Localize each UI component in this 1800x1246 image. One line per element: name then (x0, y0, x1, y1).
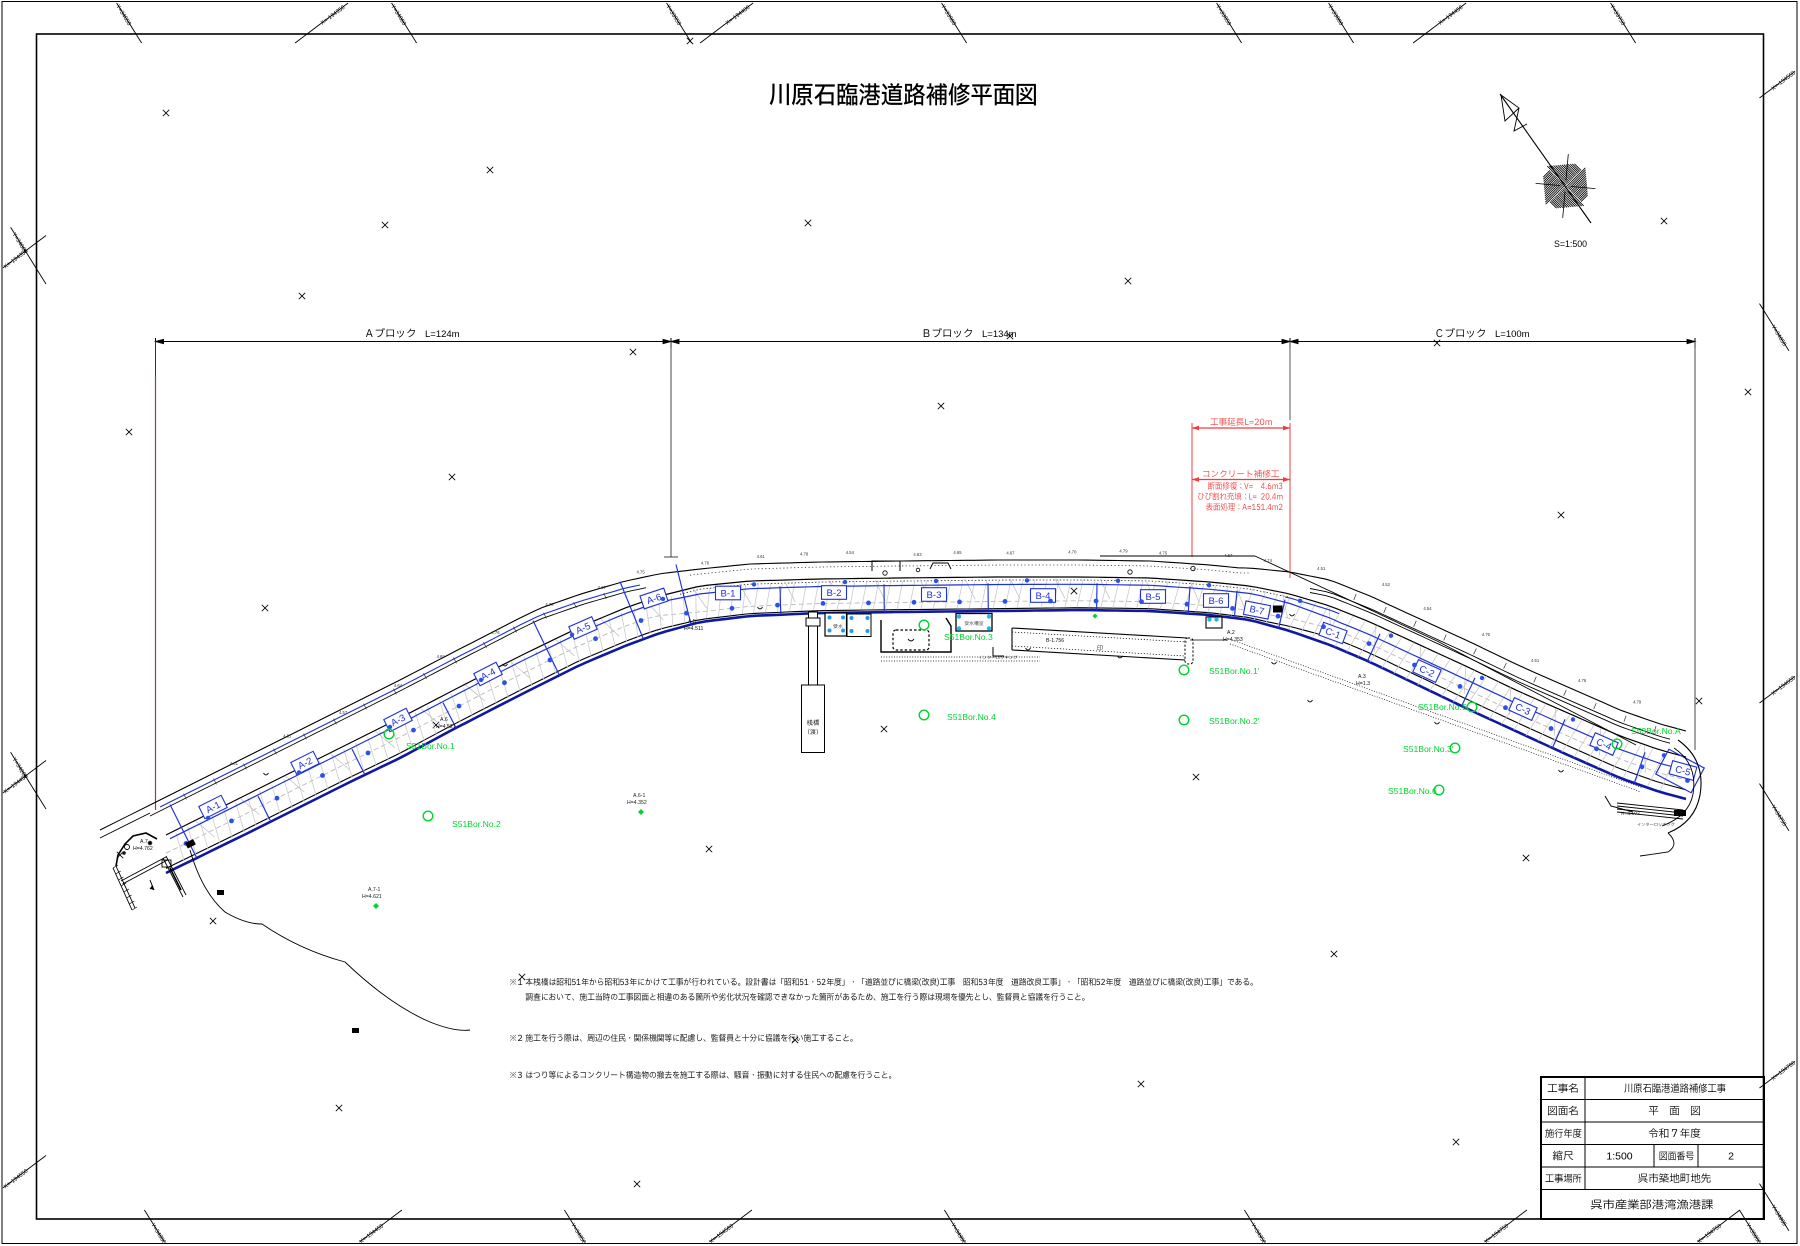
svg-text:B-5: B-5 (1146, 592, 1161, 603)
svg-text:S51Bor.No.2': S51Bor.No.2' (1209, 716, 1260, 726)
svg-text:4.61: 4.61 (230, 761, 239, 766)
svg-text:4.65: 4.65 (953, 550, 962, 555)
svg-text:4.74: 4.74 (1264, 558, 1273, 563)
svg-text:B-6: B-6 (1209, 596, 1224, 607)
svg-text:H=4.762: H=4.762 (133, 846, 153, 852)
svg-text:H=4.353: H=4.353 (1223, 637, 1243, 643)
svg-text:H=4.511: H=4.511 (684, 626, 703, 632)
svg-text:4.61: 4.61 (757, 554, 766, 559)
svg-text:4.75: 4.75 (637, 570, 646, 575)
svg-text:L=124m: L=124m (425, 329, 460, 340)
svg-text:4.78: 4.78 (800, 552, 809, 557)
svg-text:4.67: 4.67 (598, 585, 607, 590)
svg-text:A.5: A.5 (688, 619, 696, 625)
svg-text:4.76: 4.76 (491, 630, 500, 635)
svg-text:S51Bor.No.1': S51Bor.No.1' (1209, 666, 1260, 676)
svg-text:L=134m: L=134m (982, 329, 1017, 340)
svg-text:4.79: 4.79 (1633, 700, 1642, 705)
svg-text:4.52: 4.52 (1382, 582, 1391, 587)
svg-text:4.75: 4.75 (1159, 551, 1168, 556)
svg-text:4.54: 4.54 (846, 550, 855, 555)
svg-text:4.51: 4.51 (1317, 566, 1326, 571)
svg-text:A.3: A.3 (1358, 674, 1366, 680)
svg-text:S51Bor.No.5: S51Bor.No.5 (1418, 702, 1467, 712)
svg-text:4.54: 4.54 (1423, 606, 1432, 611)
svg-text:S53Bor.No.A: S53Bor.No.A (1631, 726, 1681, 736)
svg-text:L=100m: L=100m (1495, 329, 1530, 340)
svg-text:1:500: 1:500 (1606, 1151, 1632, 1163)
svg-text:B-3: B-3 (927, 590, 942, 601)
svg-text:S51Bor.No.3: S51Bor.No.3 (944, 632, 993, 642)
svg-text:4.79: 4.79 (1119, 549, 1128, 554)
svg-text:A.7: A.7 (140, 839, 148, 845)
svg-text:4.76: 4.76 (1578, 678, 1587, 683)
svg-text:B-1.756: B-1.756 (1046, 638, 1064, 644)
svg-text:4.69: 4.69 (437, 654, 446, 659)
svg-text:4.70: 4.70 (545, 602, 554, 607)
svg-text:H=4.521: H=4.521 (436, 724, 456, 730)
svg-text:S=1:500: S=1:500 (1554, 239, 1587, 249)
svg-text:S51Bor.No.2: S51Bor.No.2 (452, 819, 501, 829)
svg-text:4.76: 4.76 (701, 561, 710, 566)
svg-text:H=4.621: H=4.621 (362, 894, 382, 900)
svg-text:H=1.3: H=1.3 (1356, 681, 1370, 687)
svg-text:H=4.352: H=4.352 (627, 800, 647, 806)
svg-text:A.2: A.2 (1227, 630, 1235, 636)
svg-text:2: 2 (1728, 1151, 1734, 1163)
svg-text:A.6-1: A.6-1 (633, 793, 646, 799)
svg-text:4.67: 4.67 (1006, 551, 1015, 556)
svg-text:B-1: B-1 (721, 588, 736, 599)
svg-text:S51Bor.No.6: S51Bor.No.6 (1388, 786, 1437, 796)
svg-text:4.63: 4.63 (913, 552, 922, 557)
svg-text:4.51: 4.51 (1531, 658, 1540, 663)
svg-text:4.51: 4.51 (283, 734, 292, 739)
svg-text:4.57: 4.57 (339, 710, 348, 715)
svg-text:4.76: 4.76 (1482, 632, 1491, 637)
svg-text:S51Bor.No.3': S51Bor.No.3' (1403, 744, 1454, 754)
svg-text:4.70: 4.70 (1068, 550, 1077, 555)
svg-text:4.64: 4.64 (394, 683, 403, 688)
svg-text:B-2: B-2 (827, 588, 842, 599)
svg-text:S51Bor.No.1: S51Bor.No.1 (406, 741, 455, 751)
svg-text:4.67: 4.67 (1224, 553, 1233, 558)
svg-text:S51Bor.No.4: S51Bor.No.4 (947, 712, 996, 722)
svg-text:A.6: A.6 (440, 717, 448, 723)
svg-text:A.7-1: A.7-1 (368, 887, 381, 893)
